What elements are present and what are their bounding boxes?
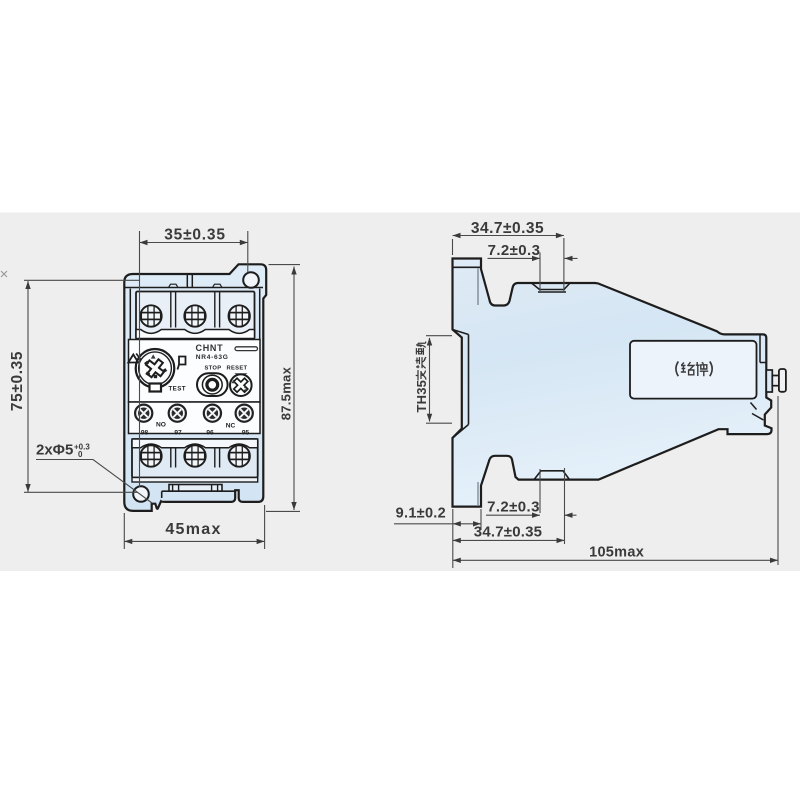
svg-text:TH35: TH35: [414, 380, 429, 413]
svg-text:RESET: RESET: [227, 366, 248, 372]
svg-text:35±0.35: 35±0.35: [164, 227, 226, 244]
svg-text:STOP: STOP: [205, 366, 222, 372]
svg-text:NR4-63G: NR4-63G: [196, 354, 229, 361]
svg-text:TEST: TEST: [169, 386, 186, 393]
svg-text:95: 95: [242, 429, 250, 436]
svg-text:34.7±0.35: 34.7±0.35: [471, 220, 544, 237]
svg-text:CHNT: CHNT: [196, 343, 224, 353]
svg-text:9.1±0.2: 9.1±0.2: [396, 506, 446, 522]
svg-text:45max: 45max: [165, 521, 221, 538]
svg-text:NO: NO: [156, 422, 166, 429]
svg-text:96: 96: [206, 429, 214, 436]
svg-text:87.5max: 87.5max: [279, 366, 294, 420]
svg-text:75±0.35: 75±0.35: [9, 351, 26, 411]
svg-text:97: 97: [174, 429, 182, 436]
svg-text:NC: NC: [226, 423, 236, 430]
svg-text:98: 98: [141, 429, 149, 436]
svg-text:34.7±0.35: 34.7±0.35: [474, 524, 542, 541]
svg-text:0: 0: [78, 450, 83, 459]
svg-text:105max: 105max: [589, 545, 644, 561]
svg-text:2xΦ5: 2xΦ5: [36, 442, 73, 459]
svg-text:7.2±0.3: 7.2±0.3: [487, 499, 540, 516]
svg-text:2: 2: [244, 387, 247, 393]
